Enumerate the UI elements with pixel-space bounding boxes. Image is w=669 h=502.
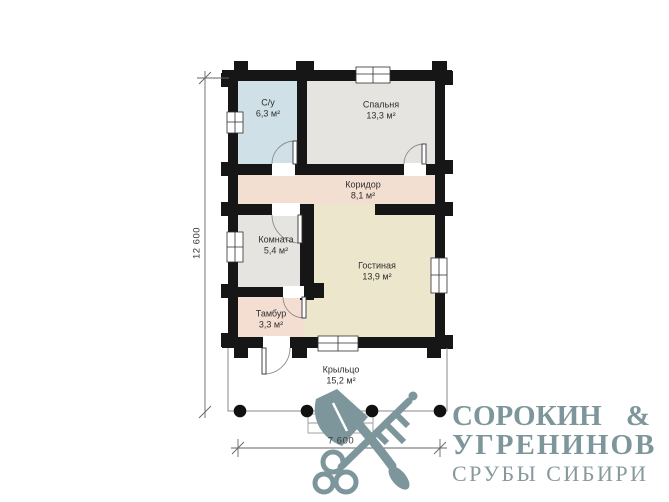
room-name: Коридор — [345, 180, 381, 191]
logo-name-part1: СОРОКИН — [452, 401, 602, 431]
room-name: Крыльцо — [323, 365, 360, 376]
room-name: Тамбур — [256, 309, 287, 320]
room-area: 13,9 м² — [358, 271, 396, 282]
room-area: 13,3 м² — [363, 110, 399, 121]
porch-post — [366, 405, 379, 418]
door-entrance — [262, 348, 266, 374]
label-room-porch: Крыльцо 15,2 м² — [323, 365, 360, 386]
key-bow-ring — [315, 474, 333, 492]
logo-tagline: СРУБЫ СИБИРИ — [452, 461, 650, 487]
porch-post — [301, 405, 314, 418]
logo-company-name-line1: СОРОКИН & — [452, 401, 650, 431]
porch-post — [434, 405, 447, 418]
floor-plan-canvas: С/у 6,3 м² Спальня 13,3 м² Коридор 8,1 м… — [0, 0, 669, 502]
room-name: Гостиная — [358, 261, 396, 272]
label-room-room: Комната 5,4 м² — [258, 235, 293, 256]
room-area: 15,2 м² — [323, 375, 360, 386]
door-room — [298, 215, 302, 243]
label-room-living: Гостиная 13,9 м² — [358, 261, 396, 282]
door-su — [293, 141, 297, 164]
company-logo: СОРОКИН & УГРЕНИНОВ СРУБЫ СИБИРИ — [452, 401, 650, 487]
label-room-bedroom: Спальня 13,3 м² — [363, 100, 399, 121]
key-bow-ring — [323, 452, 343, 472]
key-bow-ring — [336, 472, 356, 492]
room-name: С/у — [256, 98, 280, 109]
label-room-tambour: Тамбур 3,3 м² — [256, 309, 287, 330]
porch-post — [234, 405, 247, 418]
room-bedroom-floor — [302, 74, 440, 170]
door-bedroom — [422, 144, 426, 164]
room-area: 5,4 м² — [258, 245, 293, 256]
room-area: 6,3 м² — [256, 108, 280, 119]
logo-ampersand: & — [626, 401, 650, 431]
room-area: 3,3 м² — [256, 319, 287, 330]
dimension-value-vertical: 12 600 — [192, 227, 203, 259]
dimension-value-horizontal: 7 600 — [328, 436, 354, 447]
room-name: Спальня — [363, 100, 399, 111]
room-area: 8,1 м² — [345, 190, 381, 201]
room-name: Комната — [258, 235, 293, 246]
label-room-corridor: Коридор 8,1 м² — [345, 180, 381, 201]
logo-company-name-line2: УГРЕНИНОВ — [452, 431, 650, 459]
door-tambour — [302, 297, 306, 318]
label-room-su: С/у 6,3 м² — [256, 98, 280, 119]
